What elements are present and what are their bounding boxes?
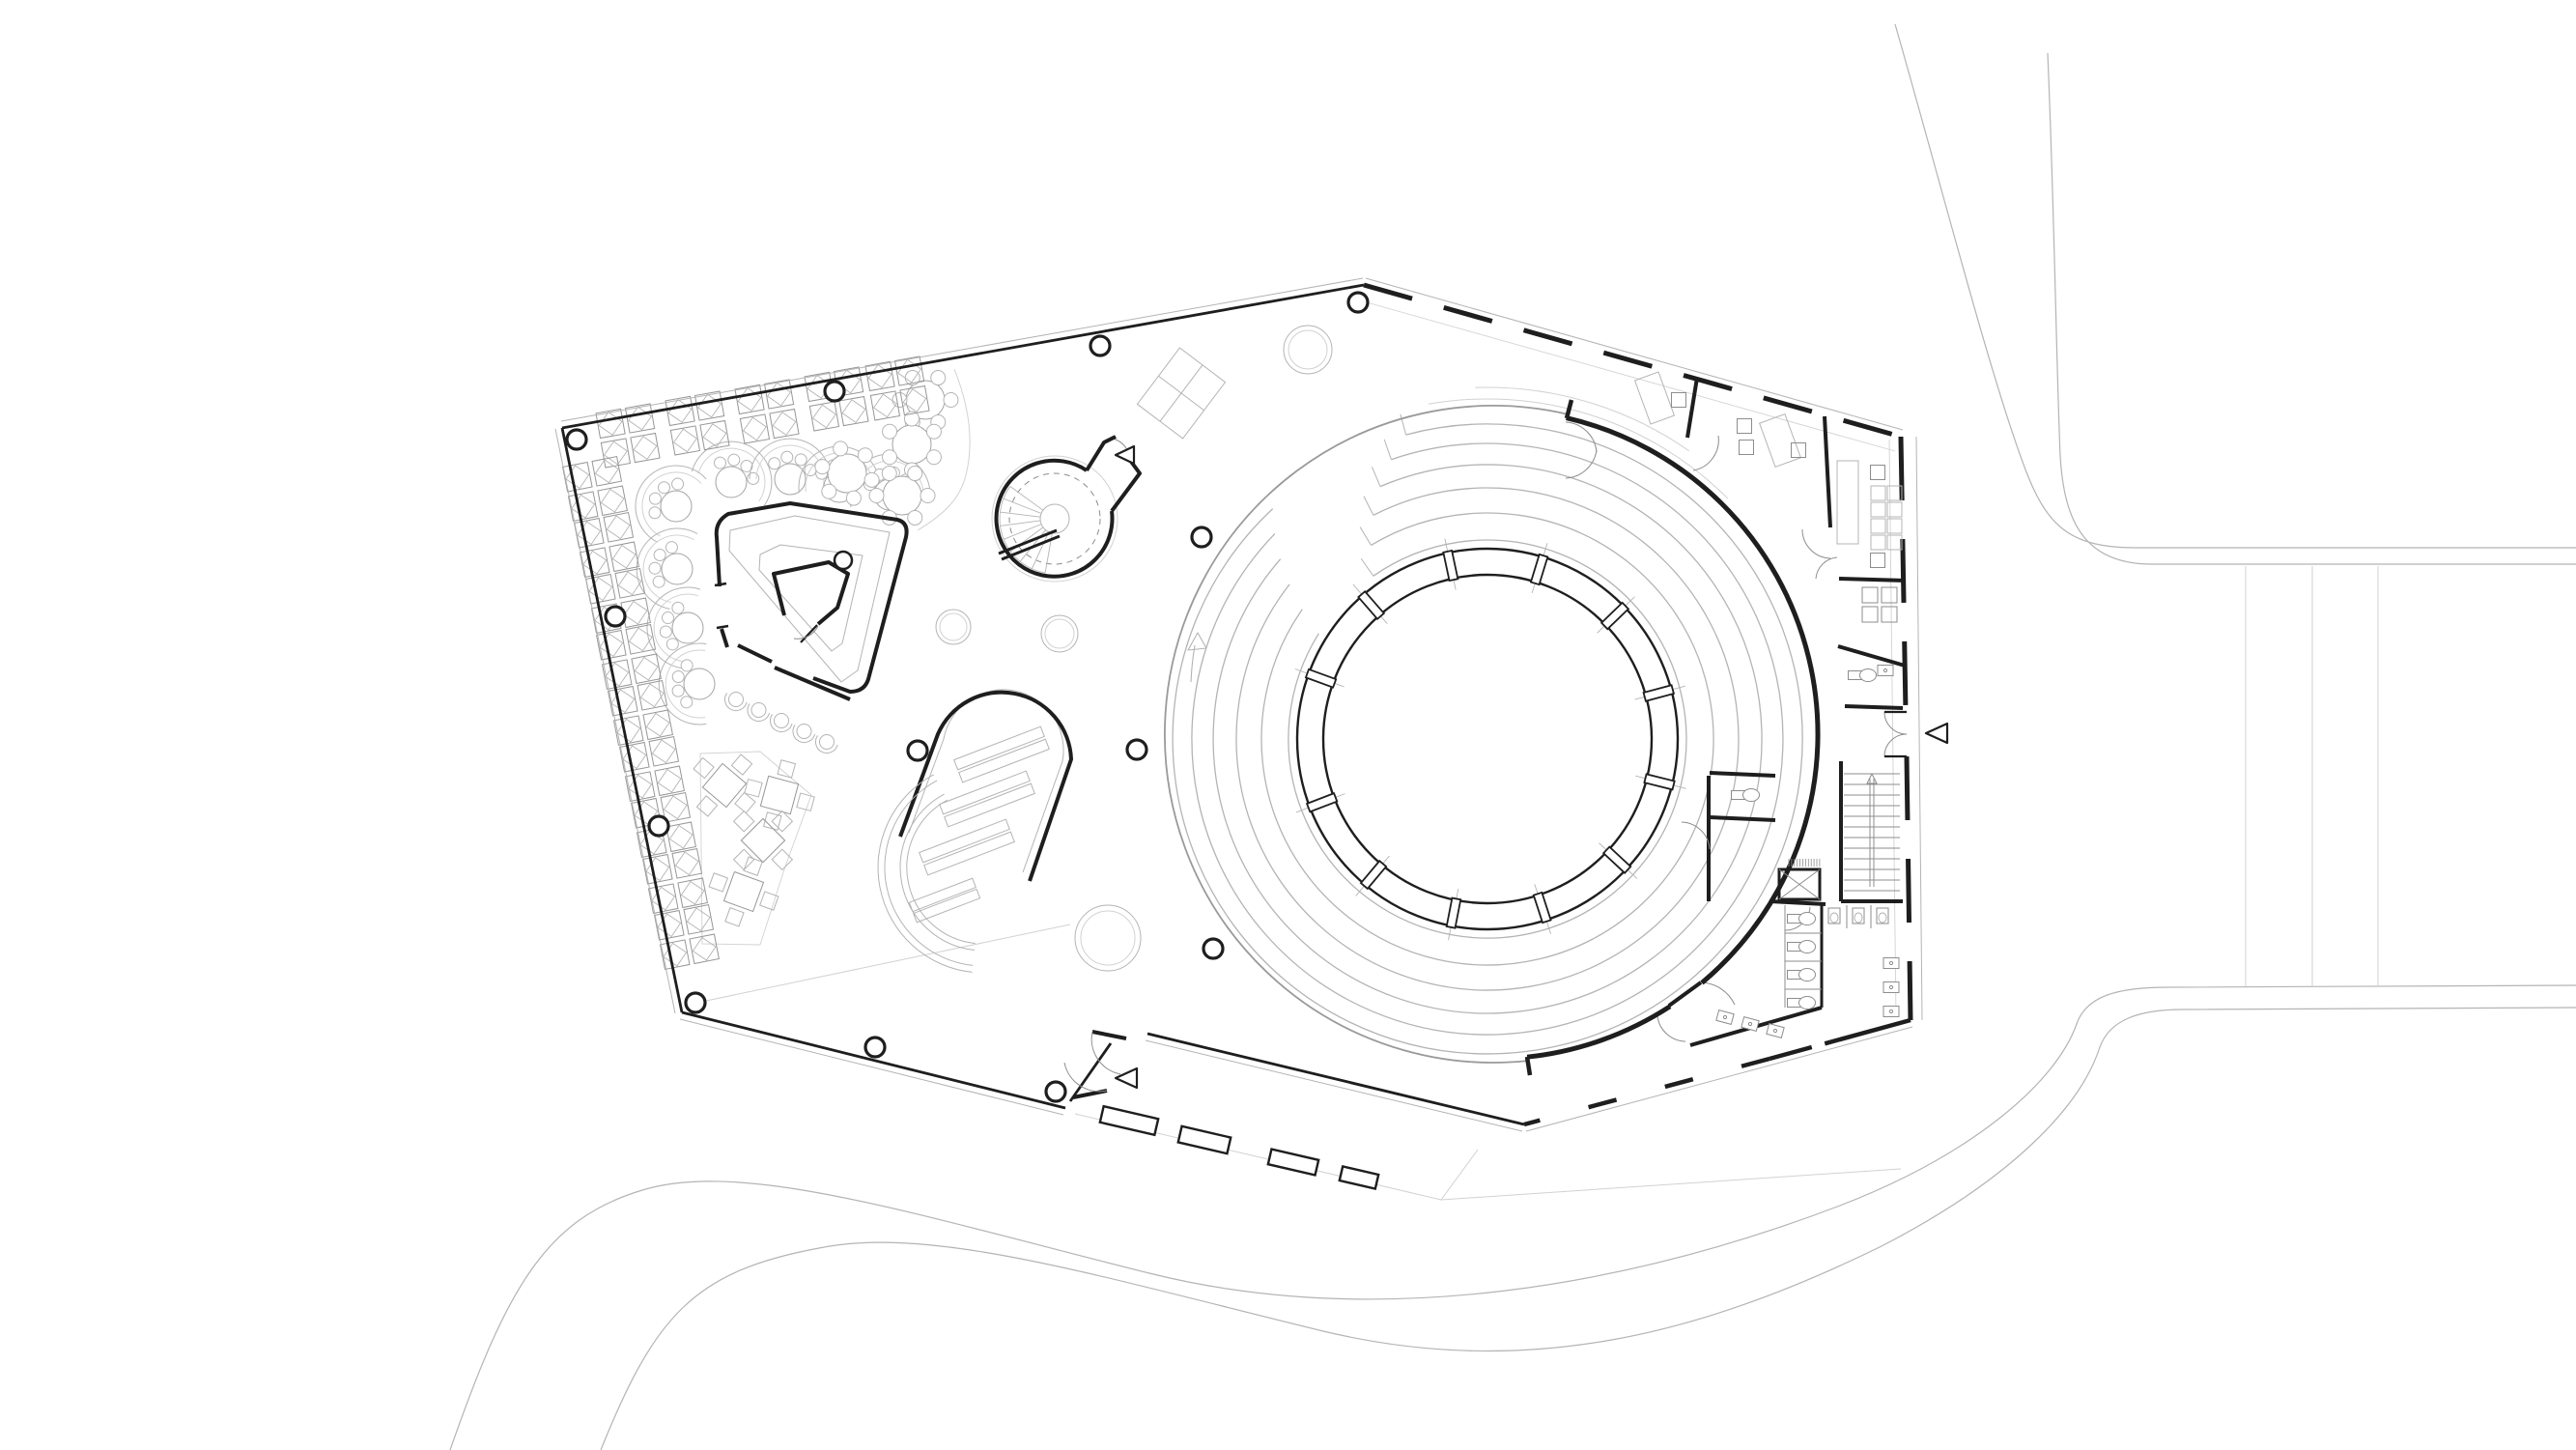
column (606, 607, 625, 626)
table-chair (744, 857, 762, 875)
spiral-newel (1040, 504, 1069, 533)
alcove-chair (658, 482, 669, 494)
office-chair (1672, 393, 1686, 408)
row-step-notch (1372, 467, 1380, 486)
stair-tread-line (1000, 512, 1040, 517)
table-chair (908, 510, 922, 525)
table-chair (846, 491, 861, 505)
pentagon-wall (738, 645, 772, 662)
floor-circle (1284, 326, 1332, 374)
spiral-enclosure (997, 461, 1113, 577)
facade-inner-line (1889, 440, 1896, 1017)
lounge-seat-cushion (813, 405, 836, 428)
lounge-seat-cushion (687, 908, 710, 931)
pentagon-pouf (835, 552, 852, 569)
facade-outer-line (1366, 278, 1903, 430)
square-table (741, 818, 784, 862)
desk (1837, 461, 1858, 544)
toilet-bowl (1799, 913, 1816, 925)
toilets (1716, 666, 1899, 1038)
stair-core (1844, 774, 1900, 891)
row-step-notch (1364, 497, 1373, 516)
pentagon-wall (717, 503, 907, 692)
shell-end-cap (1567, 400, 1571, 418)
seating-row-arc (1236, 488, 1739, 990)
table-chair (869, 489, 884, 503)
lounge-seat-cushion (599, 412, 622, 436)
small-chair (751, 703, 766, 718)
pentagon-wall (775, 668, 850, 699)
outer-faint-arc (1429, 399, 1728, 498)
door-swing (1816, 557, 1837, 579)
door-swing (1682, 822, 1710, 849)
bench-slat (954, 726, 1045, 770)
pier-wall (1364, 285, 1901, 437)
bench-slat (914, 889, 980, 922)
toilet-bowl (1799, 997, 1816, 1009)
alcove-chair (672, 685, 684, 697)
alcove-chair (649, 507, 661, 519)
lounge-cluster (735, 380, 799, 443)
alcove-chair (649, 493, 661, 504)
work-table (1871, 535, 1885, 550)
auditorium-ring (1297, 549, 1678, 929)
play-zone-boundary (700, 752, 811, 945)
site-roads (450, 24, 2576, 1450)
door-swing (1657, 1016, 1685, 1041)
lounge-seat-cushion (744, 417, 767, 441)
alcove-chair (681, 697, 693, 708)
lounge-seat-cushion (606, 663, 629, 686)
facade-outer-line (561, 278, 1363, 421)
table-chair (908, 467, 922, 481)
lounge-seat-cushion (618, 572, 641, 595)
glazed-facade (682, 1012, 1065, 1108)
terrace-zone (700, 752, 811, 945)
alcove-chair (781, 451, 793, 463)
floor-circle (1041, 615, 1078, 652)
square-table (723, 871, 763, 911)
interior-wall (1669, 982, 1701, 1006)
pantry-table (1862, 607, 1878, 622)
round-table (892, 425, 931, 464)
toilet-bowl (1743, 789, 1760, 802)
facade-outer-line (1916, 437, 1922, 1020)
door-swing (1884, 712, 1907, 734)
floor-circle-inner (1081, 911, 1135, 965)
site-path (1075, 1114, 1901, 1200)
pantry-table (1882, 587, 1897, 603)
floor-circles (936, 326, 1332, 971)
alcove-chair (728, 454, 740, 466)
alcove-table (684, 668, 715, 699)
interior-wall (1839, 579, 1906, 581)
table-chair (882, 467, 896, 481)
seating-row-arc (1173, 424, 1802, 1054)
door-swing (1802, 529, 1830, 558)
table-chair (883, 424, 897, 439)
alcove-chair (653, 576, 665, 587)
sink (1883, 1007, 1899, 1017)
interior-wall (1687, 378, 1697, 438)
table-chair (725, 908, 744, 926)
inner-room-door-leaf (801, 625, 817, 642)
table-chair (745, 780, 762, 797)
lounge-seat-cushion (623, 746, 646, 769)
table-chair (883, 450, 897, 465)
entrance-arrow-icon (1116, 446, 1134, 464)
bench-slat (945, 783, 1035, 827)
spiral-offset-ring (992, 456, 1118, 582)
work-table (1871, 486, 1885, 500)
pier-wall (1901, 437, 1906, 712)
table-chair (926, 424, 941, 439)
lounge-seat-cushion (652, 887, 675, 910)
lounge-seat-cushion (703, 424, 726, 447)
ring-pier (1603, 847, 1630, 873)
column (1348, 293, 1368, 312)
seating-row-arc (1213, 465, 1762, 1013)
skylight (1137, 348, 1225, 439)
sink (1767, 1024, 1784, 1038)
small-chair (820, 735, 835, 750)
alcove-chair (672, 478, 684, 490)
lounge-seat-cushion (768, 383, 791, 406)
alcove-chair (795, 454, 807, 466)
lounge-seat-cushion (624, 601, 647, 624)
lounge-seat-cushion (652, 740, 675, 763)
road-line (2048, 53, 2576, 564)
stair-tread-line (1004, 498, 1041, 513)
table-chair (797, 793, 814, 810)
alcove-chair (715, 457, 726, 469)
alcove-table (662, 554, 693, 584)
bench-slat (909, 878, 976, 911)
terrace-cross-tables (676, 737, 821, 936)
ring-pier (1361, 861, 1386, 889)
ring-pier (1307, 793, 1337, 811)
ring-pier (1306, 669, 1336, 688)
circulation-arrow-tail (1191, 645, 1195, 682)
pantry-table (1882, 607, 1897, 622)
ring-pier (1601, 603, 1628, 629)
outdoor-bench (1178, 1126, 1231, 1153)
lounge-seat-cushion (629, 775, 652, 798)
outdoor-bench (1100, 1106, 1158, 1135)
stair-up-arrow-icon (1867, 774, 1877, 783)
bench-slat (924, 832, 1015, 875)
alcove-table (775, 464, 806, 495)
interior-wall (1838, 646, 1905, 666)
door-swing (1884, 734, 1907, 756)
ring-pier (1531, 554, 1547, 584)
work-table (1887, 502, 1902, 517)
small-chair (797, 725, 811, 739)
office-chair (1740, 441, 1754, 455)
small-chair (775, 714, 789, 728)
table-chair (815, 460, 830, 474)
column (825, 382, 844, 401)
amphi-step-arc (900, 794, 975, 950)
lounge-seat-cushion (674, 429, 697, 452)
table-chair (734, 811, 754, 832)
stadium-bench (940, 771, 1035, 827)
entrance-arrow-icon (1116, 1068, 1137, 1088)
lounge-seat-cushion (605, 441, 628, 465)
table-chair (858, 448, 872, 463)
pier-wall (1524, 1059, 1769, 1124)
lounge-seat-cushion (646, 713, 669, 736)
lounge-seat-cushion (601, 489, 624, 512)
alcove-chair (660, 626, 671, 638)
work-table (1887, 535, 1902, 550)
terrace-alcoves (636, 439, 930, 725)
desk (1760, 414, 1801, 468)
lounge-seat-cushion (698, 394, 722, 417)
table-chair (696, 796, 717, 816)
column (1090, 336, 1110, 355)
alcove-chair (654, 550, 665, 561)
lounge-seat-cushion (600, 634, 623, 657)
table-chair (834, 441, 848, 456)
square-table (702, 763, 746, 807)
door-swing (1693, 436, 1718, 470)
skylight-mullion (1160, 365, 1203, 421)
round-table (883, 476, 921, 515)
row-step-notch (1361, 558, 1373, 576)
table-chair (731, 754, 751, 775)
interior-wall (1710, 773, 1775, 776)
lounge-seat-cushion (634, 437, 657, 460)
floor-circle-inner (1045, 619, 1074, 648)
road-line (1895, 24, 2576, 548)
outdoor-bench (1268, 1150, 1318, 1176)
spiral-door-jamb (1087, 437, 1116, 470)
table-chair (709, 873, 727, 892)
table-chair (772, 849, 792, 869)
spiral-stair (992, 437, 1140, 582)
column (1046, 1082, 1065, 1101)
amphi-step-arc (878, 775, 973, 973)
stadium-bench (920, 819, 1015, 875)
door-swing (1701, 982, 1735, 1005)
table-chair (926, 450, 941, 465)
amphi-bench (909, 878, 979, 923)
entrance-arrow-icon (1926, 724, 1947, 743)
lounge-seat-cushion (572, 495, 595, 518)
glazed-facade (1147, 1034, 1524, 1124)
floor-circle (936, 610, 971, 644)
interior-wall (1710, 817, 1775, 820)
stadium-bench (954, 726, 1050, 782)
row-step-notch (1360, 527, 1371, 546)
outdoor-benches (1100, 1106, 1378, 1188)
alcove-chair (769, 458, 780, 469)
stair-tread-line (1010, 486, 1043, 510)
bench-slat (920, 819, 1010, 863)
right-wing-furniture (1635, 372, 1902, 622)
table-chair (944, 393, 958, 408)
alcove-table (716, 467, 747, 498)
lounge-seat-cushion (629, 407, 652, 430)
alcove-chair (665, 542, 677, 554)
table-chair (694, 757, 714, 778)
column (1127, 740, 1146, 759)
table-chair (931, 371, 946, 385)
column (908, 741, 927, 760)
bench-slat (959, 739, 1050, 782)
stadium-nook (878, 690, 1071, 972)
terrace-lounge-left (563, 457, 720, 970)
work-table (1871, 519, 1885, 533)
sink (1883, 958, 1899, 969)
alcove-chair (666, 639, 678, 650)
auditorium-shell (1527, 400, 1818, 1075)
table-chair (734, 849, 754, 869)
shell-end-cap (1527, 1057, 1530, 1075)
ring-pier (1443, 551, 1458, 581)
column (686, 993, 705, 1012)
office-chair (1738, 419, 1752, 434)
ring-pier (1534, 893, 1551, 923)
alcove-table (672, 612, 703, 643)
inner-room-wall (774, 562, 848, 624)
alcove-chair (681, 660, 693, 671)
pentagon-wall (722, 629, 727, 647)
door-swing (1566, 450, 1597, 478)
column (1192, 527, 1211, 547)
floor-circle-inner (1288, 330, 1327, 369)
terrace-chair-row (724, 693, 837, 753)
pantry-table (1862, 587, 1878, 603)
pentagon-room (715, 503, 907, 699)
lounge-seat-cushion (668, 400, 692, 423)
pier-wall (1907, 756, 1911, 1020)
skylight-grid (1137, 348, 1225, 439)
lounge-seat-cushion (693, 937, 716, 960)
column (865, 1038, 885, 1057)
lounge-seat-cushion (738, 388, 761, 412)
alcove-chair (672, 602, 684, 613)
sink (1878, 666, 1893, 676)
floor-plan-canvas (0, 0, 2576, 1450)
floor-plan-drawing (0, 0, 2576, 1450)
column (649, 816, 668, 836)
ring-pier (1644, 685, 1674, 700)
shell-wall-arc (1527, 1007, 1670, 1057)
work-table (1871, 502, 1885, 517)
lounge-cluster (597, 625, 662, 690)
seating-row-arc (1192, 443, 1783, 1035)
road-line (450, 985, 2576, 1450)
column (567, 430, 586, 449)
cross-table-set (699, 847, 787, 935)
lounge-seat-cushion (669, 825, 693, 848)
lounge-seat-cushion (595, 460, 618, 483)
table-chair (760, 892, 778, 910)
lounge-seat-cushion (617, 719, 640, 742)
ring-pier (1358, 591, 1383, 619)
facade-outer-line (1146, 1040, 1522, 1131)
toilet-bowl (1860, 669, 1877, 682)
site-path (688, 924, 1070, 1005)
alcove-chair (672, 671, 684, 683)
ring-pier (1644, 774, 1674, 789)
outdoor-bench (1340, 1166, 1378, 1188)
sink (1716, 1010, 1734, 1025)
stair-tread-line (1004, 525, 1041, 540)
pentagon-door-jamb (715, 583, 726, 585)
column (1203, 939, 1223, 958)
sink (1883, 982, 1899, 993)
pier-wall (1769, 1020, 1911, 1059)
lounge-seat-cushion (681, 881, 704, 904)
lounge-seat-cushion (635, 657, 658, 680)
table-chair (864, 472, 879, 487)
interior-wall (1769, 901, 1826, 904)
ring-pier (1447, 898, 1461, 928)
facade-outer-line (680, 1019, 1063, 1115)
glazed-facade (562, 285, 1364, 428)
lounge-seat-cushion (664, 943, 687, 966)
work-table (1887, 519, 1902, 533)
floor-circle-inner (940, 613, 967, 640)
spiral-door-jamb (1112, 455, 1140, 511)
table-chair (822, 484, 836, 498)
road-line (601, 1008, 2576, 1450)
toilet-bowl (1799, 941, 1816, 953)
square-table (760, 776, 798, 813)
interior-wall (1845, 706, 1903, 708)
lounge-seat-cushion (607, 516, 630, 539)
pentagon-offset (729, 516, 890, 682)
lounge-seat-cushion (773, 412, 796, 436)
office-chair (1871, 466, 1885, 480)
seating-row-arc (1288, 540, 1686, 938)
facade-outer-line (1526, 1027, 1912, 1131)
lounge-seat-cushion (868, 365, 892, 388)
alcove-chair (649, 562, 661, 574)
lounge-seat-cushion (658, 769, 681, 792)
lounge-seat-cushion (612, 545, 636, 568)
seating-row-arc (1261, 513, 1713, 965)
toilet-bowl (1799, 969, 1816, 981)
stair-tread-line (1000, 521, 1040, 526)
floor-circle (1075, 905, 1141, 971)
pentagon-door-jamb (717, 626, 728, 628)
site-path (1441, 1150, 1478, 1200)
bench-slat (940, 771, 1031, 814)
row-step-notch (1384, 440, 1391, 460)
office-chair (1871, 554, 1885, 568)
lounge-seat-cushion (664, 796, 687, 819)
lounge-seat-cushion (842, 400, 865, 423)
outer-faint-arc (1475, 387, 1689, 451)
table-chair (920, 489, 935, 503)
alcove-chair (663, 612, 674, 624)
alcove-table (661, 491, 692, 522)
lounge-seat-cushion (611, 690, 635, 713)
interior-wall (1092, 1032, 1126, 1038)
lounge-seat-cushion (675, 852, 698, 875)
small-chair (729, 693, 744, 707)
